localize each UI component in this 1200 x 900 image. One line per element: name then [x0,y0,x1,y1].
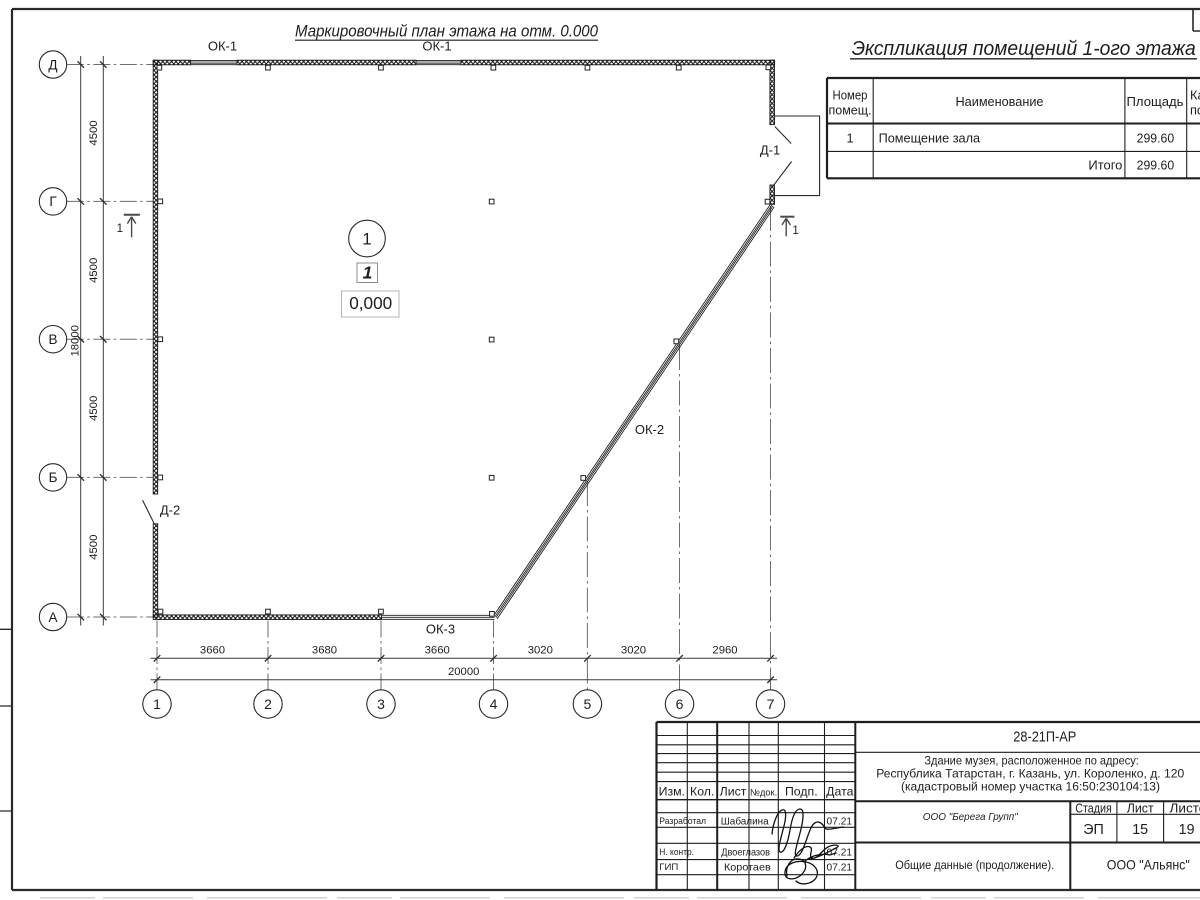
svg-text:В: В [48,332,57,347]
svg-text:3020: 3020 [528,645,553,657]
svg-text:1: 1 [153,696,161,712]
svg-text:Общие данные (продолжение).: Общие данные (продолжение). [895,858,1054,872]
svg-text:Листов: Листов [1170,801,1200,815]
svg-text:2960: 2960 [712,645,737,657]
svg-text:5: 5 [584,696,592,712]
svg-text:1: 1 [363,263,373,283]
svg-text:Лист: Лист [720,784,747,798]
svg-text:ООО "Альянс": ООО "Альянс" [1107,857,1190,872]
svg-text:Помещение зала: Помещение зала [879,131,981,146]
svg-text:18000: 18000 [70,325,82,356]
svg-text:Республика Татарстан, г. Казан: Республика Татарстан, г. Казань, ул. Кор… [876,767,1184,781]
svg-text:(кадастровый номер участка 16:: (кадастровый номер участка 16:50:230104:… [901,780,1160,794]
svg-text:07.21: 07.21 [827,816,853,827]
svg-text:Н. контр.: Н. контр. [659,847,694,858]
svg-text:20000: 20000 [448,666,479,678]
svg-text:4500: 4500 [88,535,100,560]
svg-text:4500: 4500 [88,120,100,145]
svg-text:4500: 4500 [88,258,100,283]
svg-text:1: 1 [792,225,798,237]
svg-text:помещ.: помещ. [829,103,872,118]
svg-text:28-21П-АР: 28-21П-АР [1013,730,1076,746]
svg-text:1: 1 [117,223,123,235]
svg-text:Кол.: Кол. [690,784,714,798]
svg-text:Лист: Лист [1127,801,1154,815]
svg-text:ОК-2: ОК-2 [635,422,664,437]
svg-text:ГИП: ГИП [659,862,678,873]
svg-text:07.21: 07.21 [827,847,853,858]
svg-text:Г: Г [49,194,57,209]
svg-text:Стадия: Стадия [1075,801,1112,815]
svg-text:1: 1 [846,131,853,146]
svg-text:по: по [1190,103,1200,118]
svg-text:Итого: Итого [1088,158,1122,173]
svg-text:Д: Д [48,57,57,72]
svg-text:Здание музея, расположенное по: Здание музея, расположенное по адресу: [924,754,1139,768]
svg-text:6: 6 [676,696,684,712]
svg-text:Разработал: Разработал [659,816,706,827]
svg-text:Шабалина: Шабалина [721,816,769,828]
svg-text:3: 3 [377,696,385,712]
svg-text:Площадь: Площадь [1127,94,1184,109]
svg-text:299.60: 299.60 [1137,131,1175,146]
svg-text:4: 4 [490,696,498,712]
svg-text:Экспликация помещений 1-ого эт: Экспликация помещений 1-ого этажа [852,38,1196,60]
svg-text:ОК-3: ОК-3 [426,622,455,637]
svg-text:Д-1: Д-1 [760,143,780,158]
svg-text:15: 15 [1132,822,1148,838]
svg-text:Коротаев: Коротаев [724,861,771,873]
svg-text:3660: 3660 [200,645,225,657]
svg-text:Изм.: Изм. [659,784,685,798]
svg-text:Дата: Дата [826,784,853,798]
svg-text:4500: 4500 [88,396,100,421]
svg-text:Двоеглазов: Двоеглазов [721,846,770,858]
svg-text:0,000: 0,000 [349,293,392,313]
svg-text:7: 7 [767,696,775,712]
svg-text:№док.: №док. [750,788,777,798]
svg-text:Подп.: Подп. [785,784,818,798]
svg-text:19: 19 [1179,822,1195,838]
svg-text:3680: 3680 [312,645,337,657]
svg-text:07.21: 07.21 [827,862,853,873]
svg-text:ОК-1: ОК-1 [422,39,451,54]
svg-text:ОК-1: ОК-1 [208,39,237,54]
svg-text:299.60: 299.60 [1137,158,1175,173]
svg-text:2: 2 [264,696,272,712]
svg-text:1: 1 [362,230,371,249]
svg-text:Номер: Номер [833,88,868,103]
svg-text:Ка: Ка [1190,88,1200,103]
svg-text:3020: 3020 [621,645,646,657]
svg-text:ЭП: ЭП [1083,822,1104,838]
svg-text:Б: Б [49,470,58,485]
svg-text:Д-2: Д-2 [160,503,180,518]
svg-text:ООО "Берега Групп": ООО "Берега Групп" [923,812,1018,823]
svg-text:3660: 3660 [425,645,450,657]
svg-text:Наименование: Наименование [956,94,1044,109]
svg-text:А: А [48,610,57,625]
